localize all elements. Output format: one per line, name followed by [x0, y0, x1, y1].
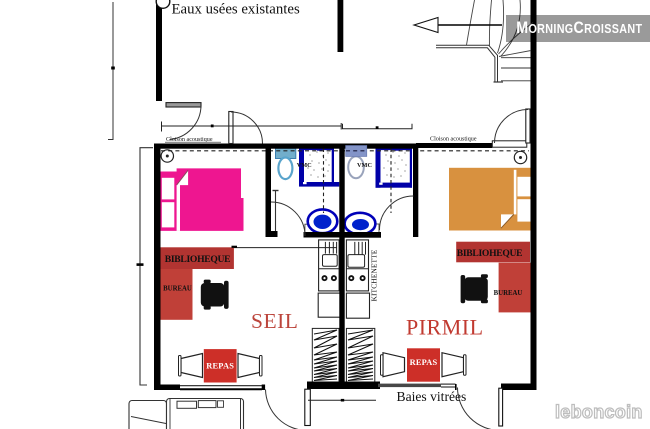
svg-text:Cloison acoustique: Cloison acoustique	[430, 137, 477, 143]
svg-text:REPAS: REPAS	[206, 361, 234, 370]
svg-text:VMC: VMC	[297, 162, 312, 169]
svg-text:BIBLIOHEQUE: BIBLIOHEQUE	[165, 254, 230, 265]
svg-text:KITCHENETTE: KITCHENETTE	[370, 249, 379, 301]
svg-text:BUREAU: BUREAU	[494, 290, 523, 297]
svg-text:Baies vitrées: Baies vitrées	[397, 389, 467, 404]
svg-text:PIRMIL: PIRMIL	[406, 315, 484, 340]
svg-text:BIBLIOHEQUE: BIBLIOHEQUE	[457, 248, 522, 259]
svg-text:SEIL: SEIL	[251, 309, 298, 333]
svg-text:Eaux usées existantes: Eaux usées existantes	[172, 2, 300, 18]
svg-text:REPAS: REPAS	[410, 358, 438, 367]
svg-text:BUREAU: BUREAU	[163, 285, 192, 292]
svg-text:VMC: VMC	[357, 162, 372, 169]
